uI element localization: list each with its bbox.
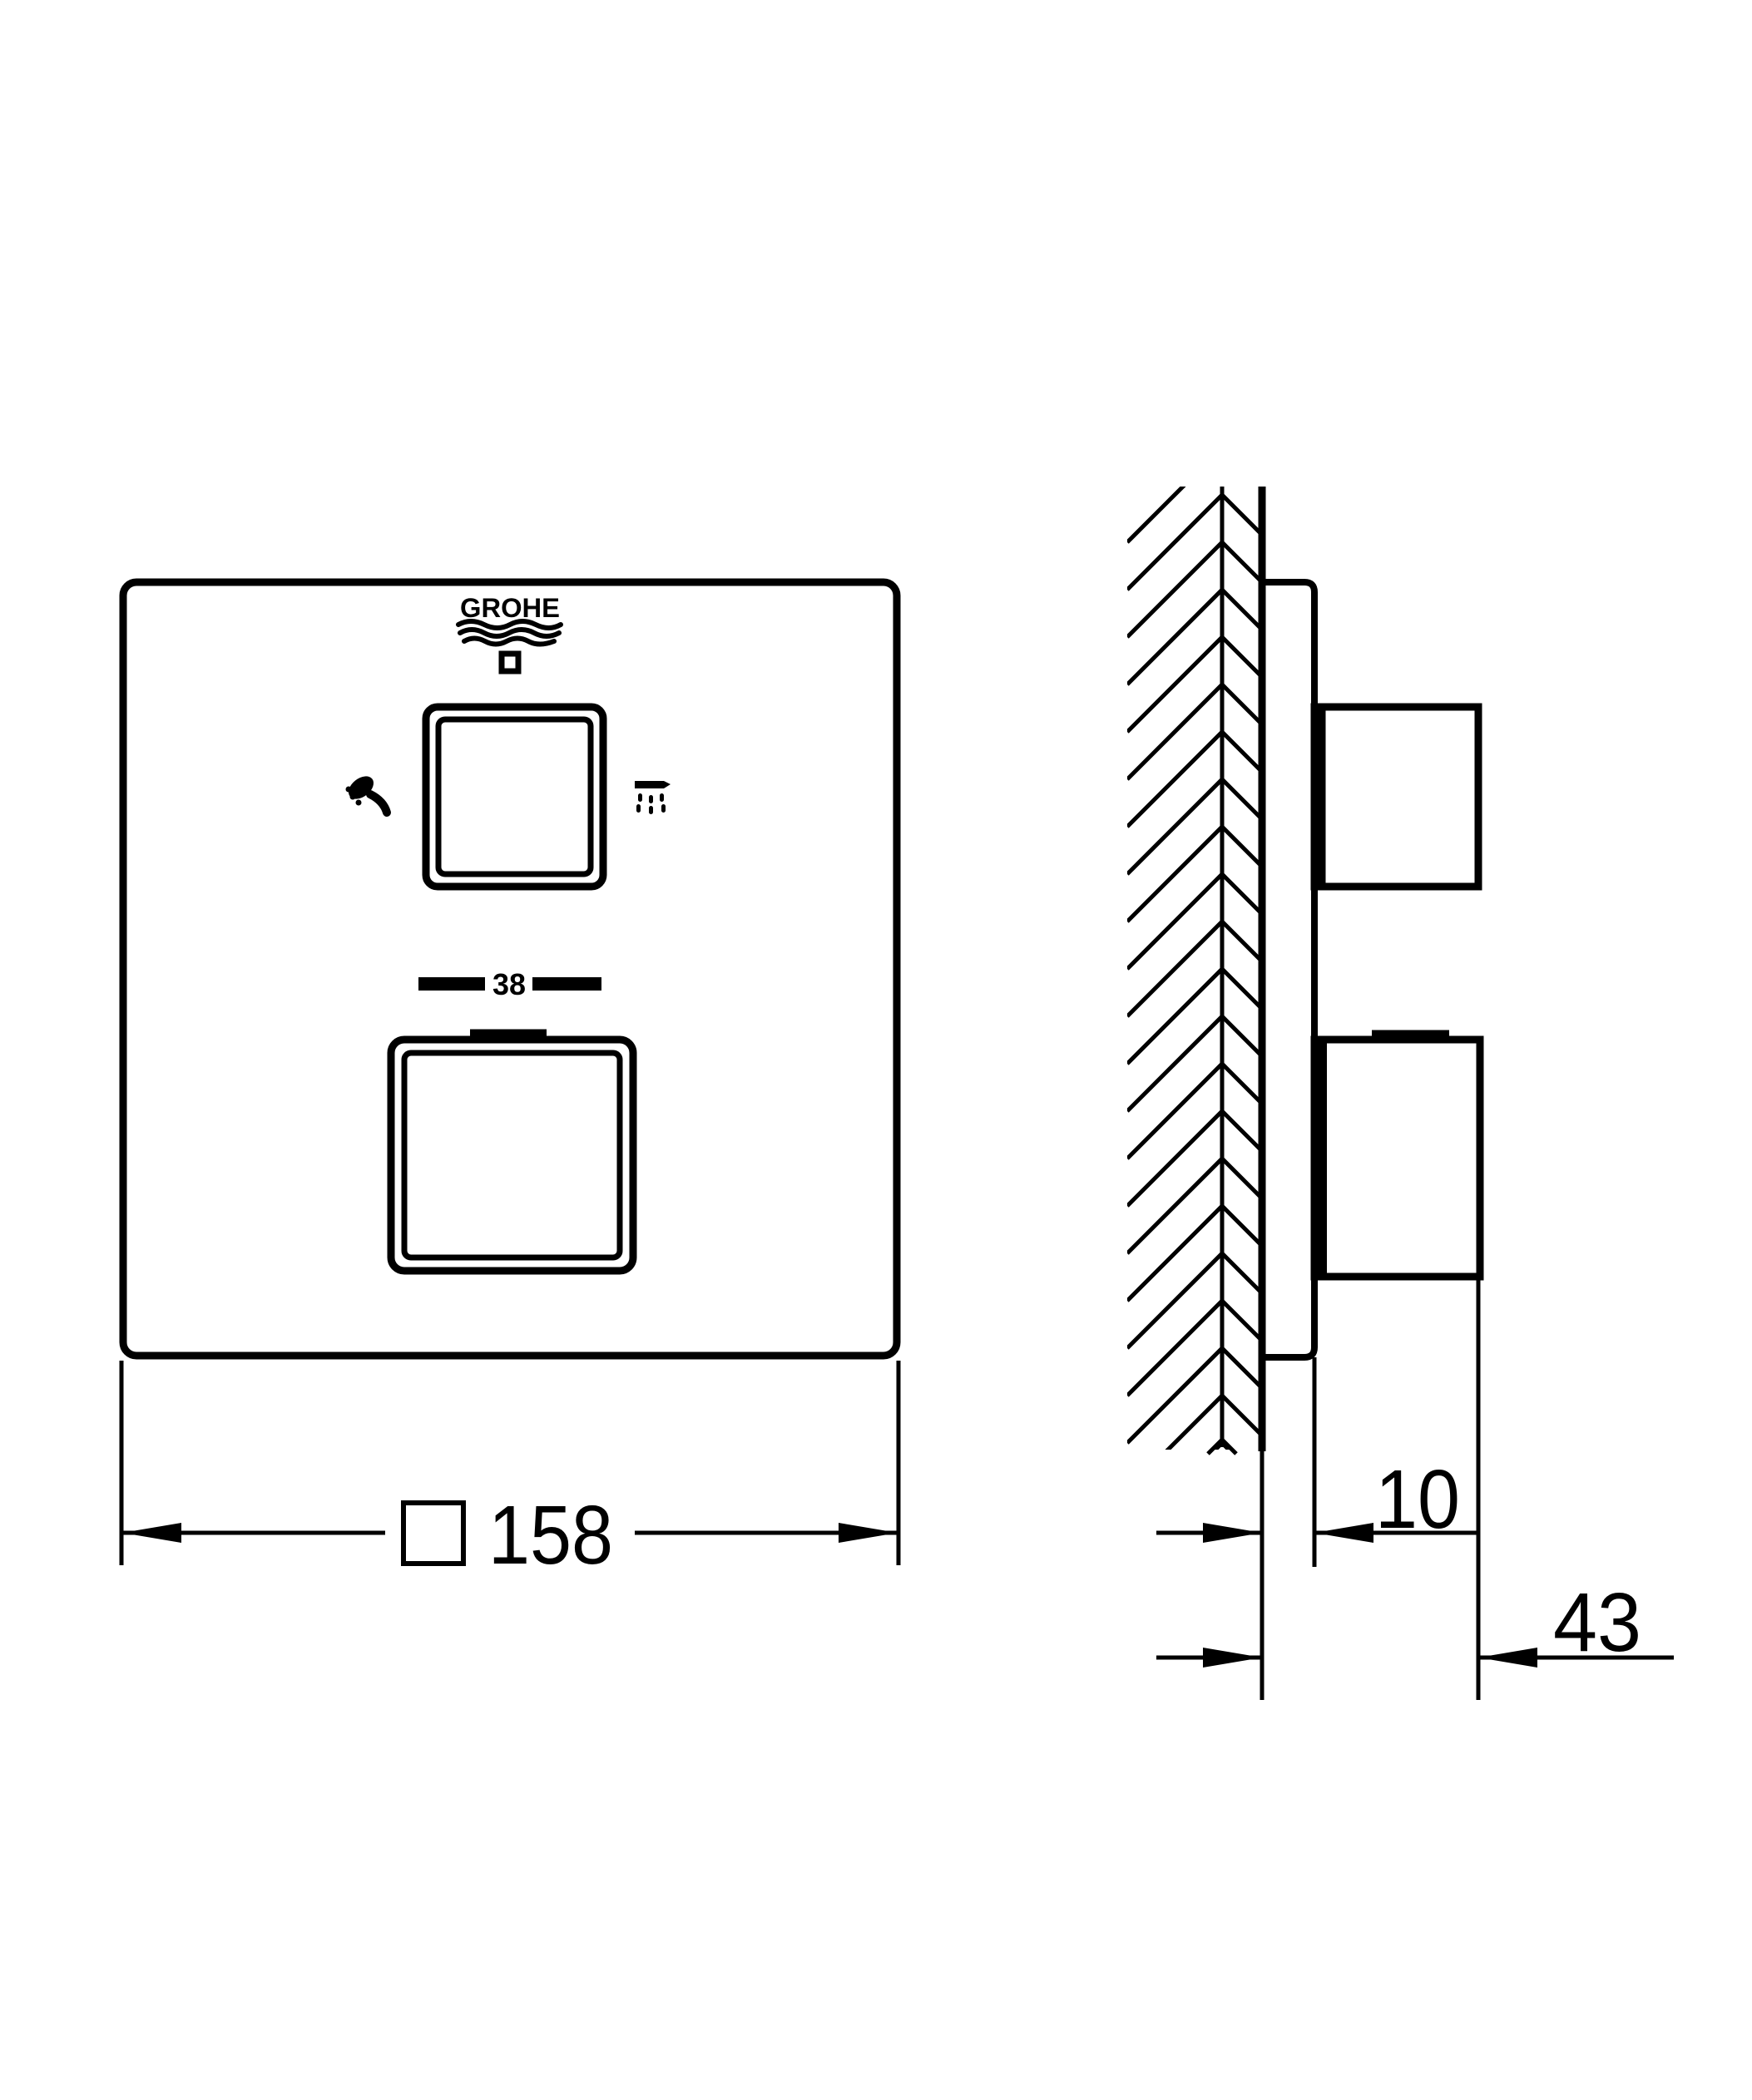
plate-depth-value: 10	[1375, 1453, 1460, 1546]
grohe-logo-text: GROHE	[460, 593, 560, 623]
front-width-value: 158	[488, 1489, 613, 1582]
arrowhead-right	[839, 1523, 898, 1543]
arrowhead-to-wall-2	[1203, 1648, 1262, 1668]
thermostat-knob-front	[391, 1034, 633, 1271]
diverter-knob-side	[1314, 707, 1478, 887]
arrowhead-to-wall	[1203, 1523, 1262, 1543]
escutcheon-plate-side	[1262, 582, 1314, 1357]
plate-depth-dimension: 10	[1156, 1453, 1478, 1546]
front-view: GROHE	[121, 582, 898, 1582]
square-symbol	[403, 1503, 463, 1564]
thermostat-knob-side	[1314, 1035, 1480, 1277]
diverter-knob-front	[426, 707, 603, 887]
arrowhead-to-plate	[1314, 1523, 1373, 1543]
wall-hatch	[1127, 447, 1262, 1538]
arrowhead-left	[122, 1523, 181, 1543]
temp-38-label: 38	[492, 967, 526, 1001]
arrowhead-to-knob	[1478, 1648, 1537, 1668]
front-width-dimension: 158	[121, 1361, 898, 1582]
drawing-sheet: GROHE	[0, 0, 1752, 2100]
knob-projection-value: 43	[1553, 1576, 1641, 1669]
side-view: 10 43	[1127, 447, 1674, 1700]
dimension-drawing: GROHE	[0, 0, 1752, 2100]
knob-projection-dimension: 43	[1156, 1576, 1674, 1669]
